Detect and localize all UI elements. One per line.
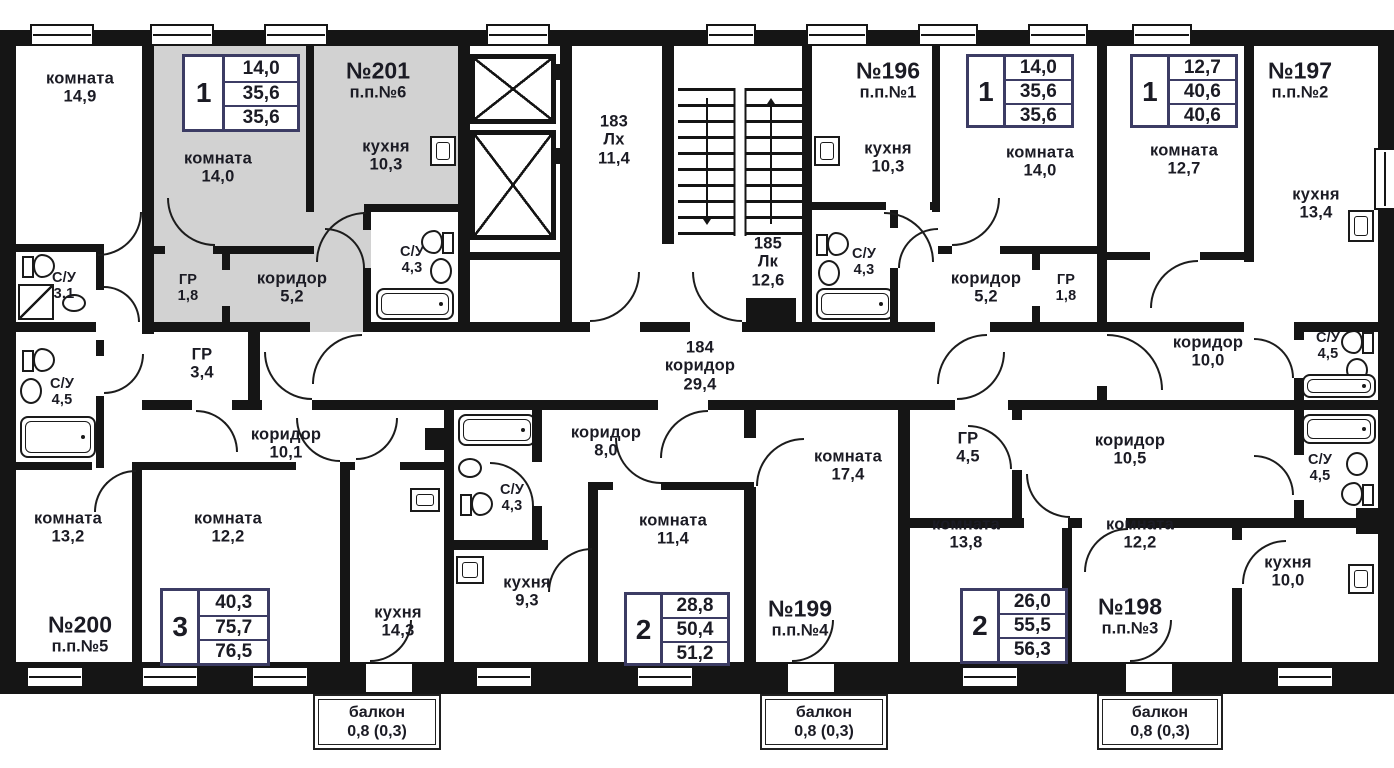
window	[636, 666, 694, 688]
wall	[142, 46, 154, 334]
apartment-number-197: №197п.п.№2	[1268, 57, 1332, 102]
wall	[1097, 46, 1107, 332]
room-label: ГР4,5	[956, 430, 980, 467]
wall	[1012, 408, 1022, 420]
room-label: кухня10,0	[1264, 554, 1311, 591]
wall	[932, 46, 940, 212]
wall	[16, 322, 96, 332]
wall	[312, 400, 658, 410]
room-label: коридор5,2	[951, 270, 1021, 307]
door-arc	[957, 352, 1005, 400]
balcony: балкон0,8 (0,3)	[760, 694, 888, 750]
wall	[142, 246, 165, 254]
wall	[16, 462, 92, 470]
wall	[802, 46, 812, 332]
toilet-icon	[1340, 330, 1374, 354]
room-label: комната12,2	[1106, 516, 1174, 553]
wall	[596, 482, 613, 490]
kitchen-sink-icon	[430, 136, 456, 166]
wall	[1232, 528, 1242, 540]
apartment-number-201: №201п.п.№6	[346, 57, 410, 102]
door-arc	[356, 418, 398, 460]
balcony-door-opening	[1126, 664, 1172, 692]
spec-table-201: 1 14,0 35,6 35,6	[182, 54, 300, 132]
door-arc	[952, 198, 1000, 246]
wall	[990, 322, 1244, 332]
vent-shaft	[1356, 508, 1378, 534]
room-label: кухня14,3	[374, 604, 421, 641]
vent-shaft	[746, 298, 796, 324]
wall	[1378, 30, 1394, 694]
door-arc	[1254, 455, 1294, 495]
elevator-shaft-icon	[470, 130, 556, 240]
window	[1132, 24, 1192, 46]
apartment-number-199: №199п.п.№4	[768, 595, 832, 640]
room-label: коридор8,0	[571, 424, 641, 461]
stairwell-label: 185Лк12,6	[752, 234, 785, 289]
kitchen-sink-icon	[1348, 210, 1374, 242]
stair-arrow-down-head	[701, 216, 713, 231]
wall	[0, 30, 16, 694]
wall	[1000, 246, 1097, 254]
room-label: комната13,8	[932, 516, 1000, 553]
wall	[1097, 386, 1107, 400]
door-arc	[1254, 338, 1294, 378]
toilet-icon	[22, 254, 56, 278]
door-arc	[692, 272, 742, 322]
window	[141, 666, 199, 688]
bathtub-icon	[458, 414, 536, 446]
wall	[1232, 588, 1242, 662]
wall	[1200, 252, 1244, 260]
bathtub-icon	[816, 288, 894, 320]
wall	[0, 662, 1394, 694]
room-label: С/У4,5	[50, 376, 74, 408]
balcony: балкон0,8 (0,3)	[1097, 694, 1223, 750]
stair-stringer	[734, 88, 747, 236]
toilet-icon	[22, 348, 56, 372]
wall	[898, 408, 910, 662]
wall	[1068, 518, 1082, 528]
wall	[306, 204, 314, 212]
wall	[458, 46, 470, 332]
sink-icon	[818, 260, 840, 286]
wall	[306, 46, 314, 212]
toilet-icon	[816, 232, 850, 256]
spec-table-197: 1 12,7 40,6 40,6	[1130, 54, 1238, 128]
window	[1276, 666, 1334, 688]
vent-shaft	[425, 428, 451, 450]
sink-icon	[458, 458, 482, 478]
room-label: комната13,2	[34, 510, 102, 547]
room-label: комната11,4	[639, 512, 707, 549]
wall	[152, 322, 310, 332]
bathtub-icon	[1302, 374, 1376, 398]
elevator-door-stub	[554, 64, 564, 80]
bathtub-icon	[20, 416, 96, 458]
wall	[96, 396, 104, 468]
door-arc	[1150, 260, 1198, 308]
wall	[532, 408, 542, 462]
wall	[1294, 500, 1304, 518]
apartment-number-196: №196п.п.№1	[856, 57, 920, 102]
kitchen-sink-icon	[814, 136, 840, 166]
room-label: комната14,9	[46, 70, 114, 107]
kitchen-sink-icon	[456, 556, 484, 584]
room-label: комната12,2	[194, 510, 262, 547]
wall	[1032, 306, 1040, 322]
room-label: С/У3,1	[52, 270, 76, 302]
bathtub-icon	[376, 288, 454, 320]
door-arc	[1107, 334, 1163, 390]
wall	[640, 322, 690, 332]
wall	[1008, 400, 1380, 410]
balcony-door-opening	[366, 664, 412, 692]
wall	[1244, 46, 1254, 262]
room-label: коридор10,0	[1173, 334, 1243, 371]
stair-arrow-down	[706, 98, 708, 222]
room-label: ГР1,8	[1056, 272, 1077, 304]
door-arc	[104, 354, 144, 394]
room-label: С/У4,5	[1308, 452, 1332, 484]
room-label: комната17,4	[814, 448, 882, 485]
window	[264, 24, 328, 46]
door-arc	[660, 410, 708, 458]
wall	[560, 46, 572, 332]
wall	[466, 252, 562, 260]
door-arc	[94, 470, 136, 512]
room-label: кухня13,4	[1292, 186, 1339, 223]
room-label: С/У4,3	[852, 246, 876, 278]
window	[806, 24, 868, 46]
wall	[222, 306, 230, 322]
wall	[662, 46, 674, 244]
wall	[744, 487, 756, 662]
sink-icon	[1346, 452, 1368, 476]
spec-table-198: 2 26,0 55,5 56,3	[960, 588, 1068, 664]
window	[918, 24, 978, 46]
wall	[232, 400, 262, 410]
sink-icon	[430, 258, 452, 284]
elevator-shaft-icon	[470, 54, 556, 124]
room-label: коридор5,2	[257, 270, 327, 307]
window	[961, 666, 1019, 688]
elevator-door-stub	[554, 148, 564, 164]
door-arc	[312, 334, 362, 384]
wall	[890, 268, 898, 322]
wall	[1012, 470, 1022, 518]
room-label: комната12,7	[1150, 142, 1218, 179]
room-label: С/У4,3	[400, 244, 424, 276]
room-label: С/У4,3	[500, 482, 524, 514]
room-label: кухня10,3	[864, 140, 911, 177]
room-label: комната14,0	[184, 150, 252, 187]
room-label: коридор10,5	[1095, 432, 1165, 469]
door-arc	[98, 212, 142, 256]
window	[1028, 24, 1088, 46]
wall	[363, 268, 371, 324]
shower-icon	[18, 284, 54, 320]
wall	[930, 202, 940, 210]
apartment-number-198: №198п.п.№3	[1098, 593, 1162, 638]
door-arc	[548, 548, 592, 592]
wall	[444, 540, 548, 550]
door-arc	[756, 438, 804, 486]
toilet-icon	[420, 230, 454, 254]
wall	[1294, 410, 1304, 455]
spec-table-199: 2 28,8 50,4 51,2	[624, 592, 730, 666]
window	[475, 666, 533, 688]
kitchen-sink-icon	[410, 488, 440, 512]
wall	[661, 482, 754, 490]
door-arc	[104, 286, 140, 322]
room-label: комната14,0	[1006, 144, 1074, 181]
window	[486, 24, 550, 46]
window	[706, 24, 756, 46]
balcony-door-opening	[788, 664, 834, 692]
door-arc	[590, 272, 640, 322]
wall	[142, 462, 296, 470]
wall	[744, 408, 756, 438]
room-label: ГР1,8	[178, 272, 199, 304]
room-label: ГР3,4	[190, 346, 214, 383]
wall	[96, 340, 104, 356]
window	[1374, 148, 1394, 210]
room-label: кухня10,3	[362, 138, 409, 175]
wall	[1097, 252, 1150, 260]
wall	[812, 202, 886, 210]
apartment-number-200: №200п.п.№5	[48, 611, 112, 656]
spec-table-200: 3 40,3 75,7 76,5	[160, 588, 270, 666]
kitchen-sink-icon	[1348, 564, 1374, 594]
room-label: С/У4,5	[1316, 330, 1340, 362]
wall	[363, 322, 590, 332]
wall	[248, 330, 260, 400]
stair-arrow-up-head	[765, 92, 777, 107]
toilet-icon	[460, 492, 494, 516]
wall	[938, 246, 952, 254]
wall	[400, 462, 444, 470]
window	[251, 666, 309, 688]
door-arc	[264, 352, 312, 400]
wall	[340, 462, 350, 662]
common-corridor-label: 184коридор29,4	[665, 338, 735, 393]
door-arc	[1026, 474, 1070, 518]
wall	[213, 246, 314, 254]
room-label: коридор10,1	[251, 426, 321, 463]
wall	[364, 204, 458, 212]
window	[30, 24, 94, 46]
spec-table-196: 1 14,0 35,6 35,6	[966, 54, 1074, 128]
elevator-hall-label: 183Лх11,4	[598, 112, 630, 167]
balcony: балкон0,8 (0,3)	[313, 694, 441, 750]
room-label: кухня9,3	[503, 574, 550, 611]
wall	[14, 244, 96, 252]
wall	[142, 400, 192, 410]
window	[150, 24, 214, 46]
staircase-icon	[678, 88, 802, 236]
bathtub-icon	[1302, 414, 1376, 444]
floor-plan: комната14,9 С/У3,1 С/У4,5 ГР3,4 коридор1…	[0, 0, 1394, 768]
stair-arrow-up	[770, 100, 772, 224]
window	[26, 666, 84, 688]
toilet-icon	[1340, 482, 1374, 506]
door-arc	[196, 410, 238, 452]
sink-icon	[20, 378, 42, 404]
